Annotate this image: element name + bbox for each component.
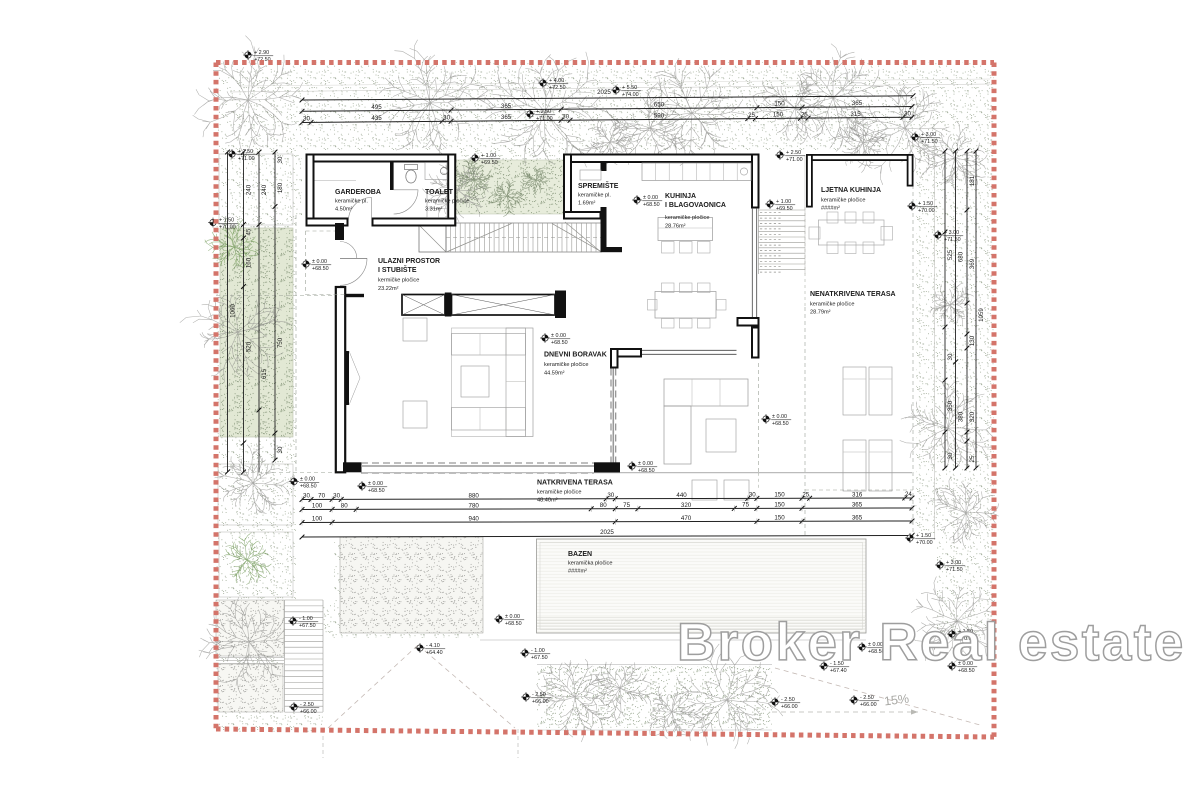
svg-text:- 2.50: - 2.50 <box>532 692 546 698</box>
svg-text:75: 75 <box>623 502 630 509</box>
svg-text:I STUBIŠTE: I STUBIŠTE <box>378 265 417 274</box>
svg-text:####m²: ####m² <box>821 206 840 212</box>
svg-text:- 4.10: - 4.10 <box>426 643 440 649</box>
svg-text:+68.50: +68.50 <box>643 202 660 208</box>
svg-text:525: 525 <box>947 249 954 260</box>
svg-text:28.79m²: 28.79m² <box>810 310 831 316</box>
svg-text:23.22m²: 23.22m² <box>378 286 399 292</box>
svg-text:TOALET: TOALET <box>425 189 454 196</box>
svg-text:+71.50: +71.50 <box>944 237 961 243</box>
svg-text:650: 650 <box>654 102 665 109</box>
svg-text:NENATKRIVENA TERASA: NENATKRIVENA TERASA <box>810 291 896 298</box>
svg-text:30: 30 <box>749 492 756 499</box>
svg-text:680: 680 <box>957 251 964 262</box>
svg-text:± 0.00: ± 0.00 <box>643 195 658 201</box>
svg-text:keramičke pločice: keramičke pločice <box>425 199 469 205</box>
svg-text:+67.50: +67.50 <box>299 623 316 629</box>
svg-text:- 1.00: - 1.00 <box>299 616 313 622</box>
svg-text:4.50m²: 4.50m² <box>335 207 353 213</box>
svg-text:+ 2.50: + 2.50 <box>238 149 253 155</box>
svg-text:+71.50: +71.50 <box>946 567 963 573</box>
svg-text:150: 150 <box>774 492 785 499</box>
svg-text:- 2.50: - 2.50 <box>860 695 874 701</box>
svg-text:keramičke pl.: keramičke pl. <box>578 193 611 199</box>
svg-text:- 1.00: - 1.00 <box>531 648 545 654</box>
svg-text:520: 520 <box>245 341 252 352</box>
svg-text:1059: 1059 <box>978 308 985 322</box>
svg-text:± 0.00: ± 0.00 <box>505 614 520 620</box>
svg-text:keramičke pločice: keramičke pločice <box>665 215 709 221</box>
svg-text:150: 150 <box>774 502 785 509</box>
svg-text:DNEVNI BORAVAK: DNEVNI BORAVAK <box>544 352 607 359</box>
svg-text:+71.50: +71.50 <box>921 139 938 145</box>
svg-text:365: 365 <box>852 501 863 508</box>
svg-text:NATKRIVENA TERASA: NATKRIVENA TERASA <box>537 480 613 487</box>
svg-text:100: 100 <box>312 516 323 523</box>
svg-text:+66.00: +66.00 <box>300 709 317 715</box>
svg-text:+66.00: +66.00 <box>860 702 877 708</box>
svg-text:80: 80 <box>600 502 607 509</box>
svg-text:+ 2.50: + 2.50 <box>536 109 551 115</box>
svg-text:75: 75 <box>742 502 749 509</box>
svg-text:70: 70 <box>318 493 325 500</box>
svg-text:150: 150 <box>774 515 785 522</box>
svg-text:30: 30 <box>607 492 614 499</box>
svg-text:+ 4.00: + 4.00 <box>549 78 564 84</box>
svg-text:keramičke pločice: keramičke pločice <box>821 198 865 204</box>
svg-text:+68.50: +68.50 <box>312 266 329 272</box>
svg-text:369: 369 <box>969 258 976 269</box>
svg-text:880: 880 <box>469 492 480 499</box>
svg-text:365: 365 <box>501 103 512 110</box>
svg-text:181: 181 <box>969 175 976 186</box>
svg-text:2025: 2025 <box>597 89 611 96</box>
svg-text:240: 240 <box>245 184 252 195</box>
svg-text:25: 25 <box>802 492 809 499</box>
svg-text:kermičke pločice: kermičke pločice <box>378 278 419 284</box>
svg-text:320: 320 <box>969 411 976 422</box>
svg-text:keramičke pločice: keramičke pločice <box>810 302 854 308</box>
svg-text:28.76m²: 28.76m² <box>665 224 686 230</box>
svg-text:+72.50: +72.50 <box>549 85 566 91</box>
svg-text:24: 24 <box>905 491 912 498</box>
svg-text:380: 380 <box>957 411 964 422</box>
svg-text:130: 130 <box>969 335 976 346</box>
svg-text:365: 365 <box>852 514 863 521</box>
svg-text:####m²: ####m² <box>568 569 587 575</box>
svg-text:180: 180 <box>277 182 284 193</box>
svg-text:± 0.00: ± 0.00 <box>300 477 315 483</box>
svg-text:+69.50: +69.50 <box>481 160 498 166</box>
svg-text:470: 470 <box>681 515 692 522</box>
svg-text:+71.00: +71.00 <box>536 116 553 122</box>
svg-text:150: 150 <box>773 112 784 119</box>
svg-text:30: 30 <box>947 452 954 459</box>
svg-text:± 0.00: ± 0.00 <box>638 461 653 467</box>
svg-text:1.69m²: 1.69m² <box>578 201 596 207</box>
svg-text:ULAZNI PROSTOR: ULAZNI PROSTOR <box>378 258 440 265</box>
svg-text:+68.50: +68.50 <box>772 421 789 427</box>
svg-text:+ 2.90: + 2.90 <box>254 50 269 56</box>
svg-text:615: 615 <box>261 368 268 379</box>
svg-text:30: 30 <box>277 446 284 453</box>
svg-text:316: 316 <box>852 491 863 498</box>
svg-text:780: 780 <box>469 502 480 509</box>
svg-text:+ 1.00: + 1.00 <box>481 153 496 159</box>
svg-text:keramičke pločice: keramičke pločice <box>537 490 581 496</box>
svg-text:+67.50: +67.50 <box>531 655 548 661</box>
svg-text:30: 30 <box>947 353 954 360</box>
svg-text:+ 3.00: + 3.00 <box>921 132 936 138</box>
svg-text:keramička pločice: keramička pločice <box>568 561 612 567</box>
svg-text:+74.00: +74.00 <box>622 92 639 98</box>
svg-text:25: 25 <box>748 112 755 119</box>
svg-text:keramičke pločice: keramičke pločice <box>544 362 588 368</box>
svg-text:+69.50: +69.50 <box>776 206 793 212</box>
svg-text:+68.50: +68.50 <box>300 484 317 490</box>
svg-text:+70.00: +70.00 <box>219 225 236 231</box>
svg-text:160: 160 <box>245 257 252 268</box>
svg-text:100: 100 <box>312 503 323 510</box>
svg-text:BAZEN: BAZEN <box>568 551 592 558</box>
svg-text:keramičke pl.: keramičke pl. <box>335 199 368 205</box>
svg-text:240: 240 <box>261 184 268 195</box>
svg-text:30: 30 <box>277 156 284 163</box>
svg-text:320: 320 <box>681 502 692 509</box>
svg-text:365: 365 <box>852 100 863 107</box>
svg-text:30: 30 <box>303 116 310 123</box>
svg-text:940: 940 <box>469 515 480 522</box>
svg-text:I BLAGOVAONICA: I BLAGOVAONICA <box>665 202 726 209</box>
svg-text:± 0.00: ± 0.00 <box>551 333 566 339</box>
svg-text:+68.50: +68.50 <box>368 488 385 494</box>
svg-text:315: 315 <box>850 111 861 118</box>
svg-text:+64.40: +64.40 <box>426 650 443 656</box>
svg-text:+ 5.50: + 5.50 <box>622 85 637 91</box>
svg-text:440: 440 <box>676 492 687 499</box>
svg-text:+66.00: +66.00 <box>781 704 798 710</box>
svg-text:+ 1.00: + 1.00 <box>776 199 791 205</box>
svg-text:80: 80 <box>341 503 348 510</box>
svg-text:30: 30 <box>303 493 310 500</box>
svg-text:3.31m²: 3.31m² <box>425 207 443 213</box>
svg-text:+70.00: +70.00 <box>916 540 933 546</box>
svg-text:+66.00: +66.00 <box>532 699 549 705</box>
svg-text:495: 495 <box>371 104 382 111</box>
svg-text:+ 3.00: + 3.00 <box>944 230 959 236</box>
svg-text:44.59m²: 44.59m² <box>544 371 565 377</box>
svg-text:KUHINJA: KUHINJA <box>665 193 696 200</box>
svg-text:Broker Real estate: Broker Real estate <box>677 613 1186 672</box>
svg-text:+ 1.50: + 1.50 <box>219 218 234 224</box>
svg-text:+ 1.50: + 1.50 <box>916 533 931 539</box>
svg-text:± 0.00: ± 0.00 <box>312 259 327 265</box>
svg-text:± 0.00: ± 0.00 <box>368 481 383 487</box>
svg-text:+68.50: +68.50 <box>551 340 568 346</box>
svg-text:45: 45 <box>245 228 252 235</box>
svg-text:+68.50: +68.50 <box>638 468 655 474</box>
svg-text:GARDEROBA: GARDEROBA <box>335 189 381 196</box>
svg-text:SPREMIŠTE: SPREMIŠTE <box>578 181 619 190</box>
svg-text:+68.50: +68.50 <box>505 621 522 627</box>
svg-text:- 2.50: - 2.50 <box>781 697 795 703</box>
svg-text:+ 3.00: + 3.00 <box>946 560 961 566</box>
svg-text:± 0.00: ± 0.00 <box>772 414 787 420</box>
svg-text:30: 30 <box>904 110 911 117</box>
svg-text:1060: 1060 <box>229 304 236 318</box>
svg-text:25: 25 <box>969 455 976 462</box>
svg-text:+71.00: +71.00 <box>238 156 255 162</box>
svg-text:+ 2.50: + 2.50 <box>786 150 801 156</box>
svg-text:2025: 2025 <box>600 529 614 536</box>
svg-text:25: 25 <box>801 111 808 118</box>
svg-text:30: 30 <box>333 493 340 500</box>
svg-text:150: 150 <box>774 101 785 108</box>
svg-text:+ 1.50: + 1.50 <box>918 201 933 207</box>
svg-text:590: 590 <box>654 113 665 120</box>
svg-text:+71.00: +71.00 <box>786 157 803 163</box>
svg-text:350: 350 <box>947 400 954 411</box>
svg-text:435: 435 <box>371 115 382 122</box>
svg-text:30: 30 <box>443 114 450 121</box>
svg-text:750: 750 <box>277 337 284 348</box>
svg-text:+70.00: +70.00 <box>918 208 935 214</box>
svg-text:LJETNA KUHINJA: LJETNA KUHINJA <box>821 187 881 194</box>
svg-text:30: 30 <box>562 113 569 120</box>
svg-text:365: 365 <box>501 114 512 121</box>
svg-text:- 2.50: - 2.50 <box>300 702 314 708</box>
